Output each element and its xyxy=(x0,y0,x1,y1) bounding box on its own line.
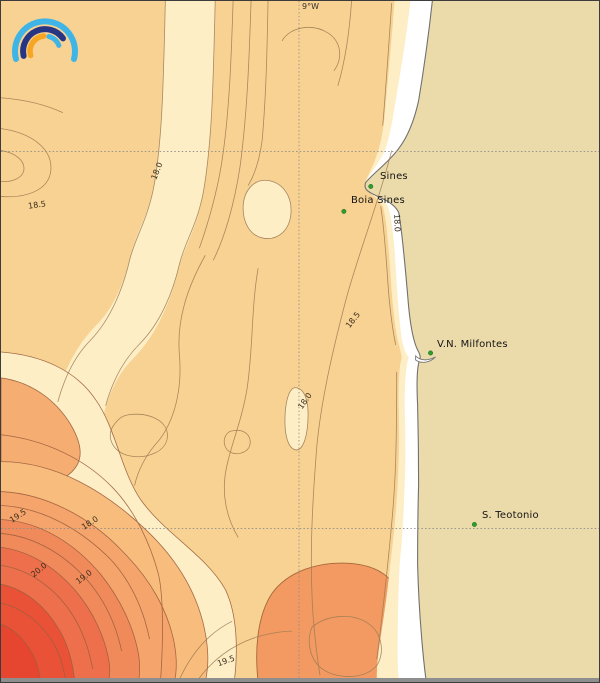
map-viewport: 9°W Sines Boia Sines V.N. Milfontes S. T… xyxy=(0,0,600,683)
logo-inner-left-arc xyxy=(30,36,44,55)
logo-inner-right-arc xyxy=(49,37,59,46)
place-label-s-teotonio: S. Teotonio xyxy=(482,510,539,521)
contour-label-18-0-coast: 18.0 xyxy=(392,214,402,232)
map-canvas xyxy=(1,1,599,682)
marker-boia-sines xyxy=(342,209,346,213)
marker-vn-milfontes xyxy=(428,351,432,355)
place-label-sines: Sines xyxy=(380,171,408,182)
window-bottom-edge xyxy=(1,678,599,682)
place-label-vn-milfontes: V.N. Milfontes xyxy=(437,339,508,350)
cool-oval xyxy=(243,180,291,238)
rainbow-logo-icon xyxy=(1,1,91,71)
marker-sines xyxy=(369,184,373,188)
meridian-label: 9°W xyxy=(302,2,319,11)
place-label-boia-sines: Boia Sines xyxy=(351,195,405,206)
marker-s-teotonio xyxy=(472,522,476,526)
